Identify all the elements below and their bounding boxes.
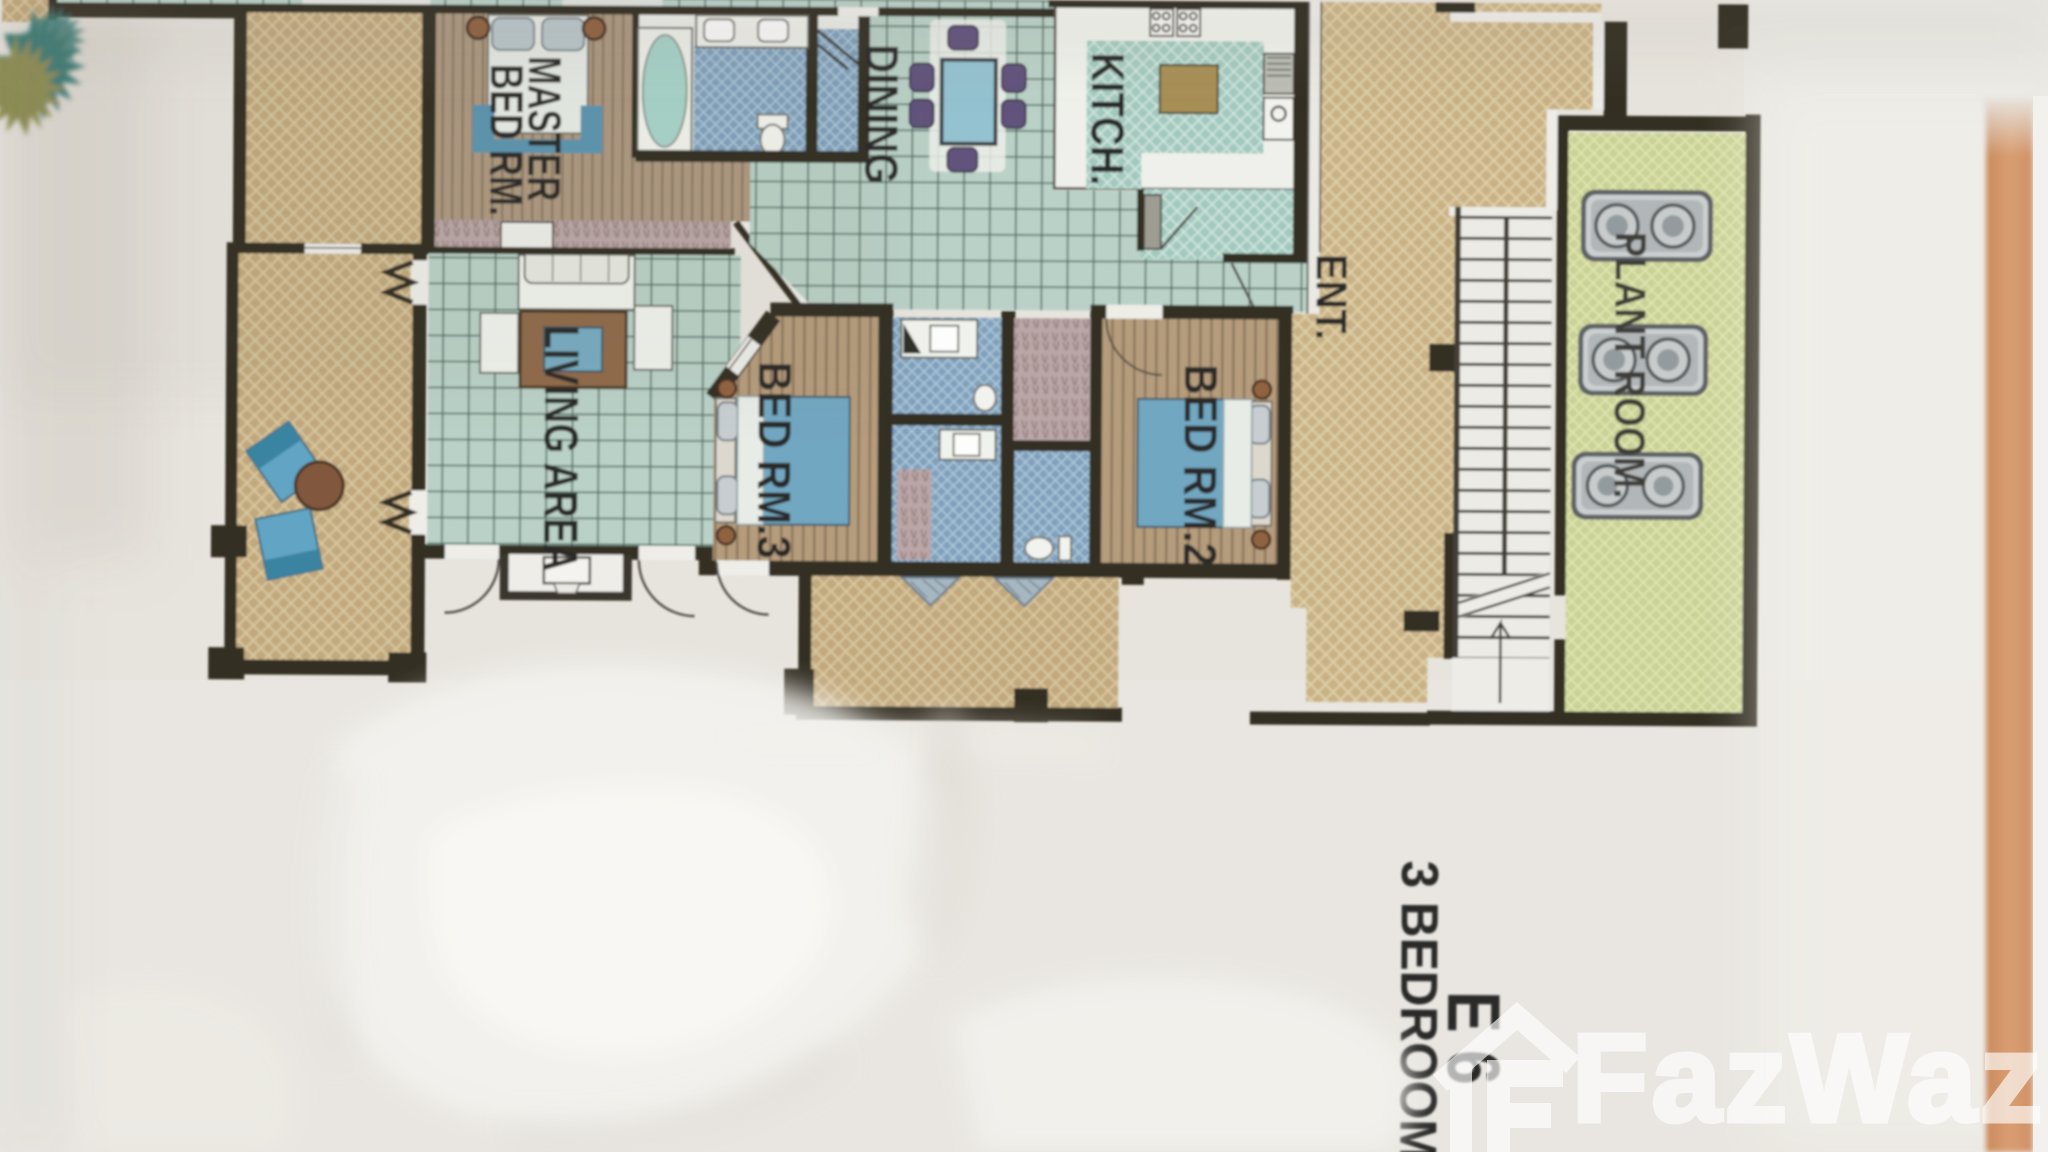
svg-text:FazWaz: FazWaz (1572, 1010, 2046, 1148)
